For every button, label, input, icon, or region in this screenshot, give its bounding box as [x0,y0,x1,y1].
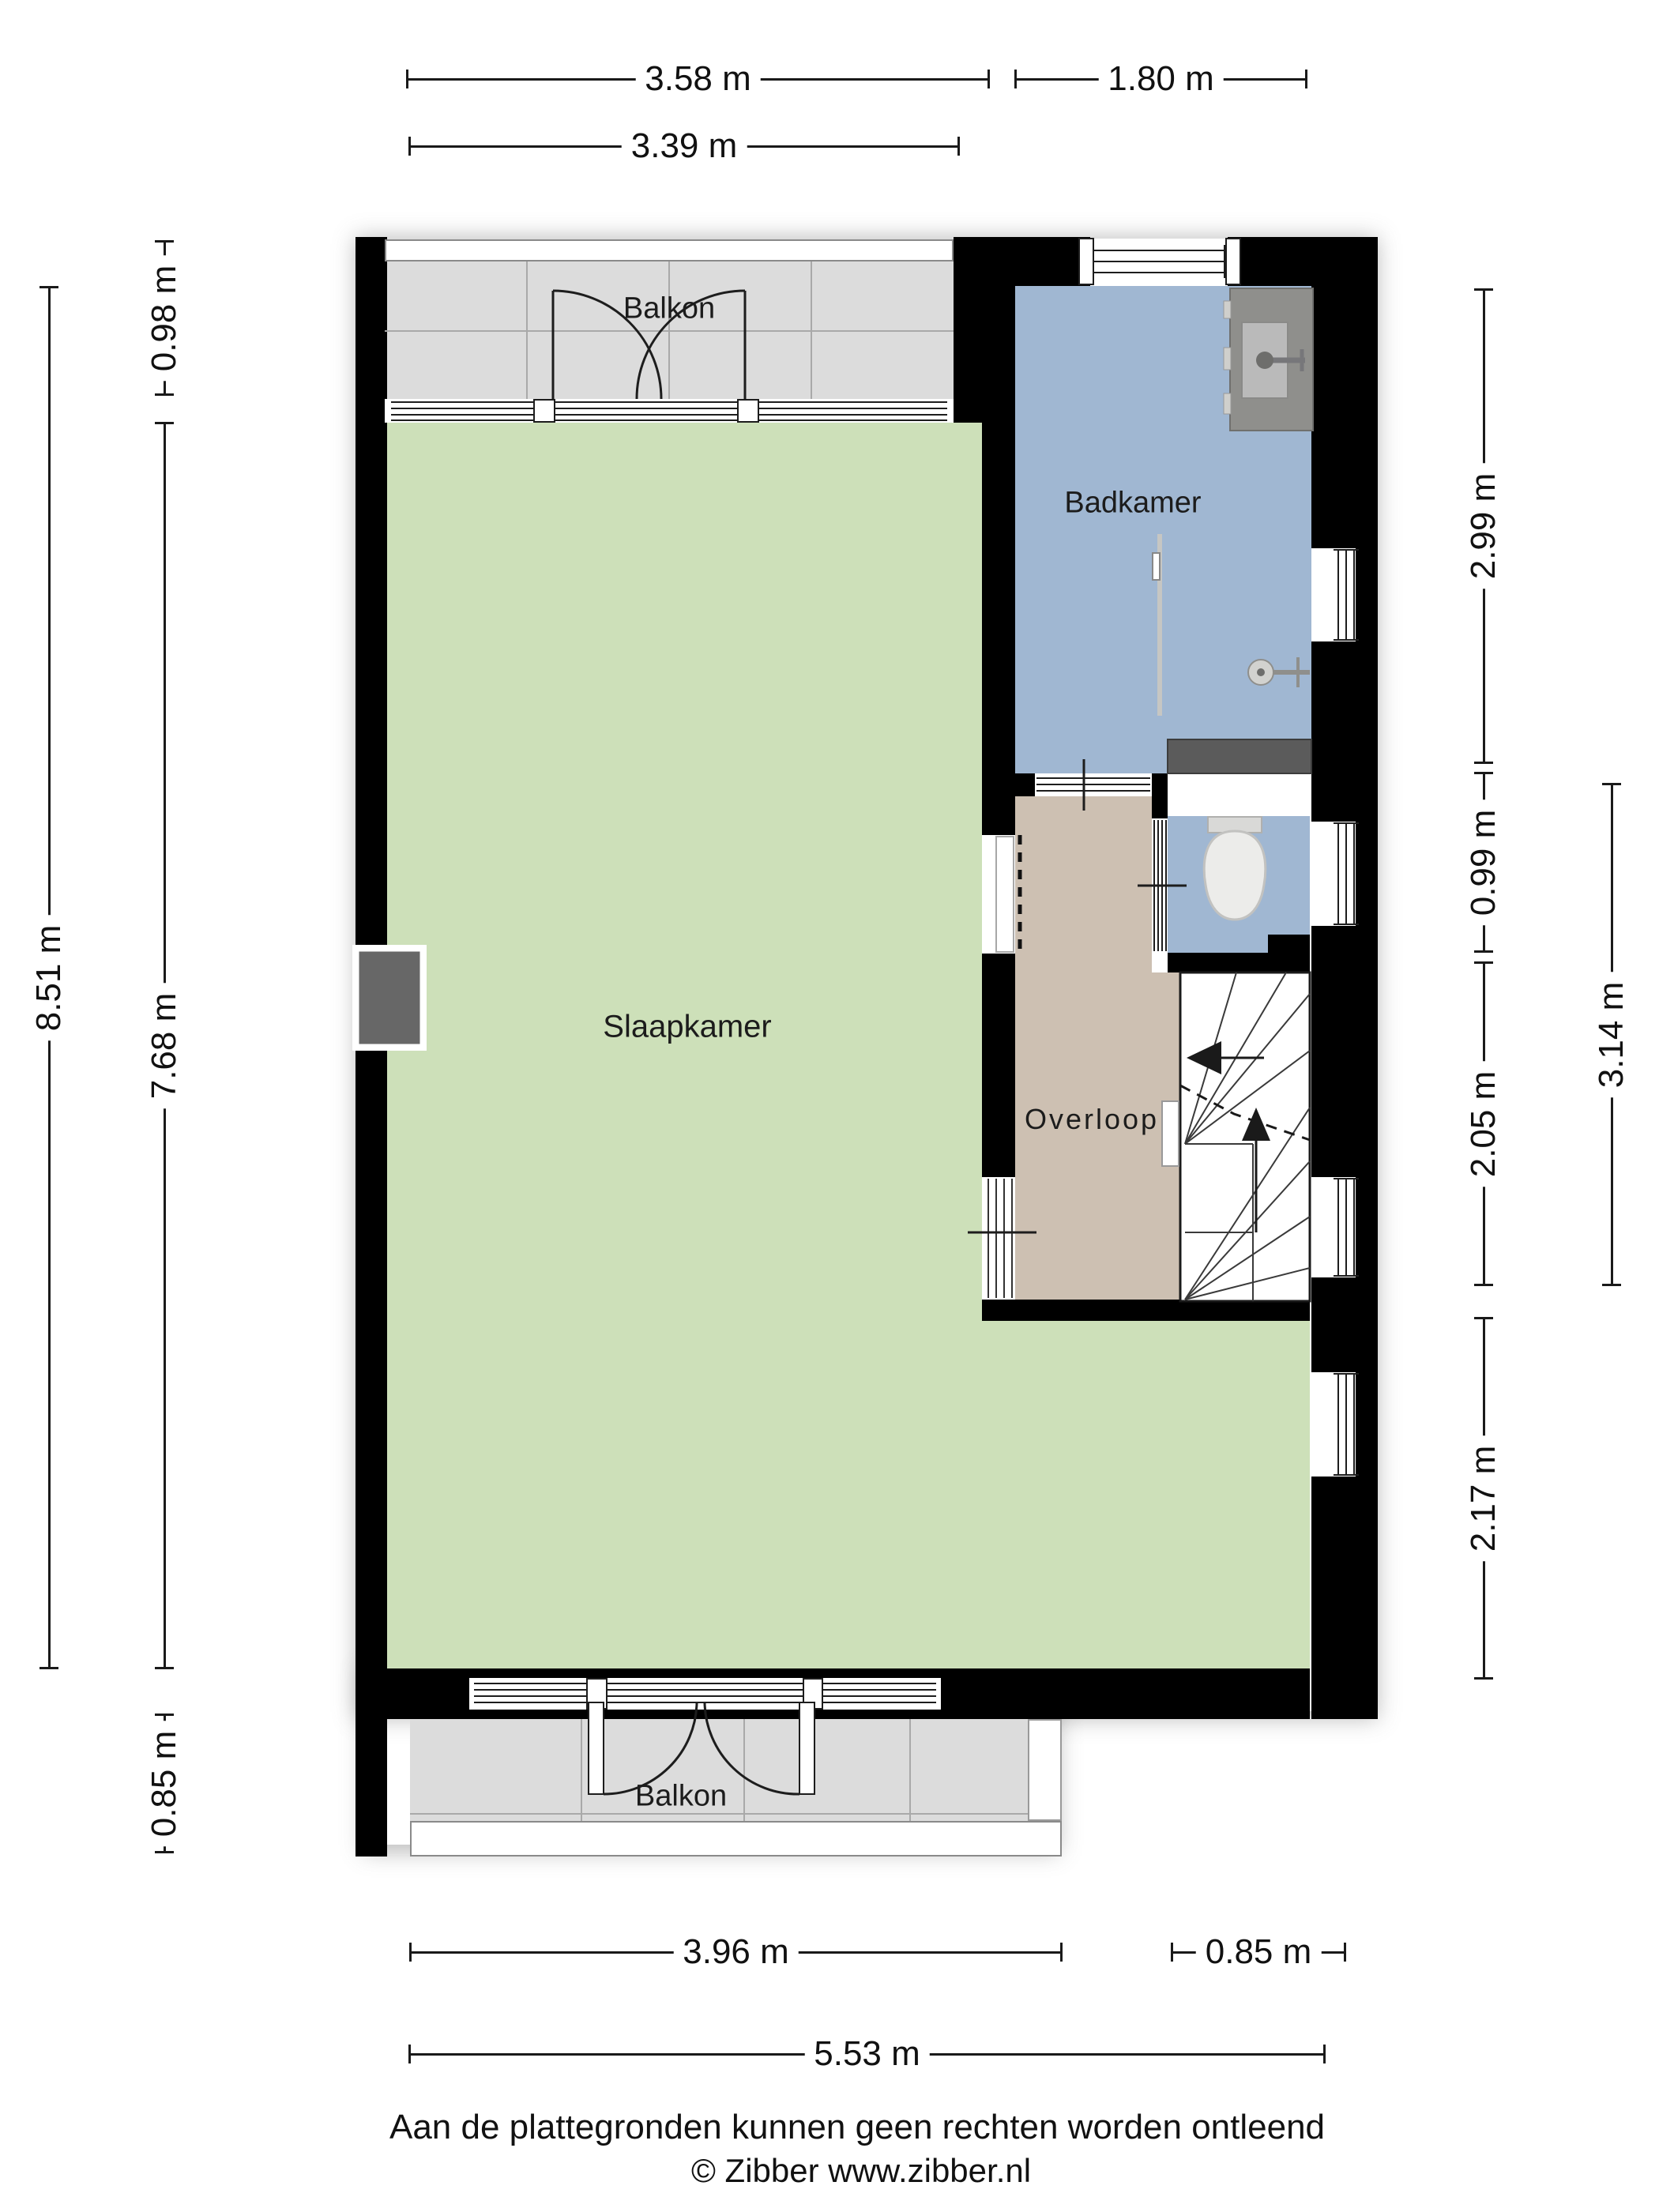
bedroom-door-leaf-icon [996,837,1014,952]
stairs-icon [1162,972,1310,1301]
room-label-balkon-bottom: Balkon [635,1780,727,1814]
toilet-icon [1204,817,1266,920]
dimension-label: 0.85 m [1196,1932,1322,1972]
door-post-icon [738,400,758,422]
sink-icon [1224,288,1313,431]
cabinet-icon [1168,739,1311,773]
room-label-balkon-top: Balkon [623,292,715,326]
dimension-label: 2.05 m [1464,1061,1503,1187]
dimension-label: 0.98 m [145,255,184,381]
dimension-label: 3.96 m [673,1932,799,1972]
window-post-icon [1079,239,1093,284]
dimension-label: 3.14 m [1592,972,1631,1097]
dimension-label: 0.99 m [1464,799,1503,925]
footer-copyright: © Zibber www.zibber.nl [691,2152,1031,2190]
dimension-label: 5.53 m [804,2034,930,2074]
dimension-label: 2.17 m [1464,1435,1503,1561]
bedroom-lower-panel-glazing [988,1179,1012,1298]
radiator-icon [352,945,427,1051]
room-label-slaapkamer: Slaapkamer [603,1010,771,1045]
right-windows-glazing [1334,550,1359,1475]
dimension-label: 1.80 m [1098,59,1224,99]
stairs-door-leaf-icon [1162,1101,1179,1166]
balcony-top-grid [385,261,954,399]
badkamer-door-icon [1036,778,1150,791]
dimension-label: 8.51 m [29,915,69,1040]
shower-icon [1153,534,1310,716]
dimension-label: 3.58 m [635,59,761,99]
balcony-top-glazing [391,402,947,420]
balcony-bottom-glazing [474,1683,936,1702]
footer-disclaimer: Aan de plattegronden kunnen geen rechten… [389,2108,1325,2147]
dimension-label: 7.68 m [145,983,184,1108]
dimension-label: 3.39 m [622,126,747,166]
room-label-overloop: Overloop [1025,1103,1159,1136]
plan-linework [0,0,1659,2212]
dimension-label: 0.85 m [145,1721,184,1846]
room-label-badkamer: Badkamer [1064,487,1201,521]
floor-plan: Balkon Badkamer Overloop Slaapkamer Balk… [0,0,1659,2212]
window-post-icon [1226,239,1240,284]
badkamer-window-glazing [1093,245,1224,278]
door-post-icon [534,400,555,422]
dimension-label: 2.99 m [1464,464,1503,589]
